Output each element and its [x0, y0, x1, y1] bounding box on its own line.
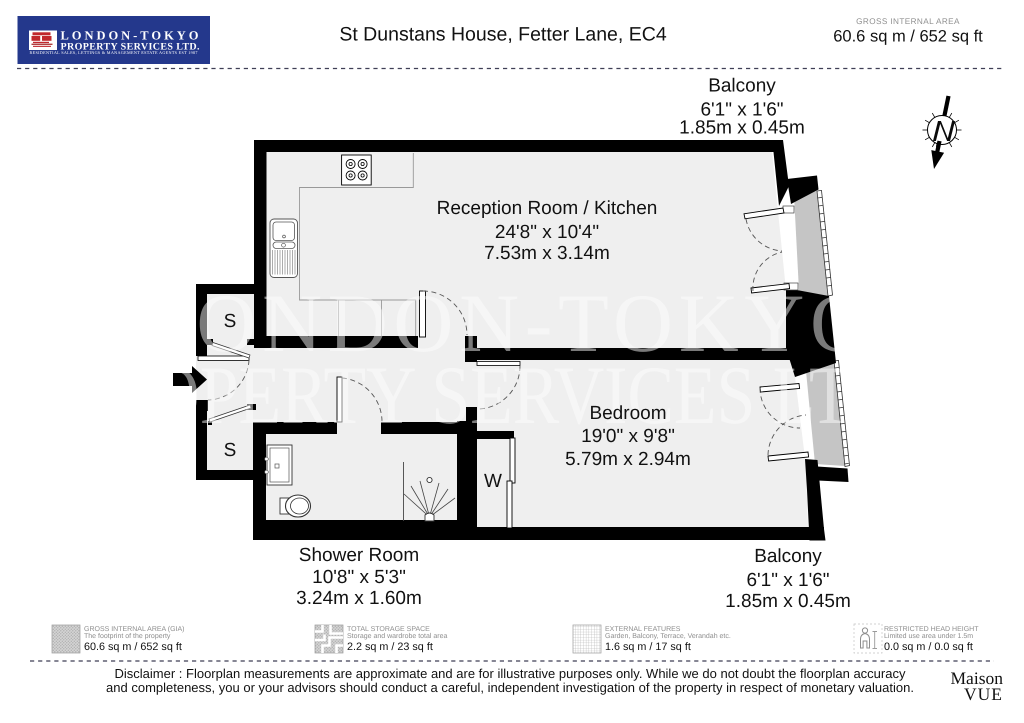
svg-text:RESTRICTED HEAD HEIGHT: RESTRICTED HEAD HEIGHT — [884, 626, 979, 633]
svg-text:The footprint of the property: The footprint of the property — [84, 632, 171, 640]
svg-text:1.85m x 0.45m: 1.85m x 0.45m — [725, 591, 851, 612]
svg-text:1.85m x 0.45m: 1.85m x 0.45m — [679, 118, 805, 139]
svg-text:and completeness, you or your: and completeness, you or your advisors s… — [106, 680, 914, 695]
svg-text:GROSS INTERNAL AREA: GROSS INTERNAL AREA — [856, 17, 960, 26]
svg-text:VUE: VUE — [964, 684, 1003, 704]
svg-text:W: W — [484, 471, 502, 492]
svg-text:19'0" x 9'8": 19'0" x 9'8" — [581, 426, 675, 447]
svg-text:Shower Room: Shower Room — [299, 545, 419, 566]
svg-text:2.2 sq m / 23 sq ft: 2.2 sq m / 23 sq ft — [347, 641, 433, 653]
svg-text:60.6 sq m / 652 sq ft: 60.6 sq m / 652 sq ft — [84, 641, 182, 653]
svg-text:Reception Room / Kitchen: Reception Room / Kitchen — [437, 198, 658, 219]
svg-text:1.6 sq m / 17 sq ft: 1.6 sq m / 17 sq ft — [605, 641, 691, 653]
svg-text:24'8" x 10'4": 24'8" x 10'4" — [495, 222, 599, 243]
svg-text:LONDON-TOKYO: LONDON-TOKYO — [61, 29, 199, 43]
svg-text:EXTERNAL FEATURES: EXTERNAL FEATURES — [605, 626, 681, 633]
svg-text:PROPERTY SERVICES LTD: PROPERTY SERVICES LTD — [64, 349, 902, 441]
svg-text:Disclaimer : Floorplan measure: Disclaimer : Floorplan measurements are … — [115, 666, 906, 681]
svg-text:Bedroom: Bedroom — [589, 403, 666, 424]
svg-text:St Dunstans House, Fetter Lane: St Dunstans House, Fetter Lane, EC4 — [339, 24, 666, 46]
svg-text:60.6 sq m / 652 sq ft: 60.6 sq m / 652 sq ft — [833, 28, 983, 46]
svg-text:Balcony: Balcony — [708, 76, 776, 97]
svg-text:0.0 sq m / 0.0 sq ft: 0.0 sq m / 0.0 sq ft — [884, 641, 973, 653]
svg-text:S: S — [224, 440, 237, 461]
svg-text:5.79m x 2.94m: 5.79m x 2.94m — [565, 449, 691, 470]
svg-text:3.24m x 1.60m: 3.24m x 1.60m — [296, 588, 422, 609]
svg-text:Storage and wardrobe total are: Storage and wardrobe total area — [347, 632, 448, 640]
svg-text:7.53m x 3.14m: 7.53m x 3.14m — [484, 243, 610, 264]
svg-text:GROSS INTERNAL AREA (GIA): GROSS INTERNAL AREA (GIA) — [84, 625, 185, 633]
svg-text:Limited use area under 1.5m: Limited use area under 1.5m — [884, 632, 973, 640]
svg-text:6'1" x 1'6": 6'1" x 1'6" — [746, 570, 829, 591]
svg-text:TOTAL STORAGE SPACE: TOTAL STORAGE SPACE — [347, 626, 430, 633]
svg-text:RESIDENTIAL SALES, LETTINGS &: RESIDENTIAL SALES, LETTINGS & MANAGEMENT… — [30, 50, 198, 55]
svg-text:Garden, Balcony, Terrace, Vera: Garden, Balcony, Terrace, Verandah etc. — [605, 632, 731, 640]
svg-text:10'8" x 5'3": 10'8" x 5'3" — [312, 567, 406, 588]
svg-text:S: S — [224, 311, 237, 332]
svg-text:Balcony: Balcony — [754, 546, 822, 567]
